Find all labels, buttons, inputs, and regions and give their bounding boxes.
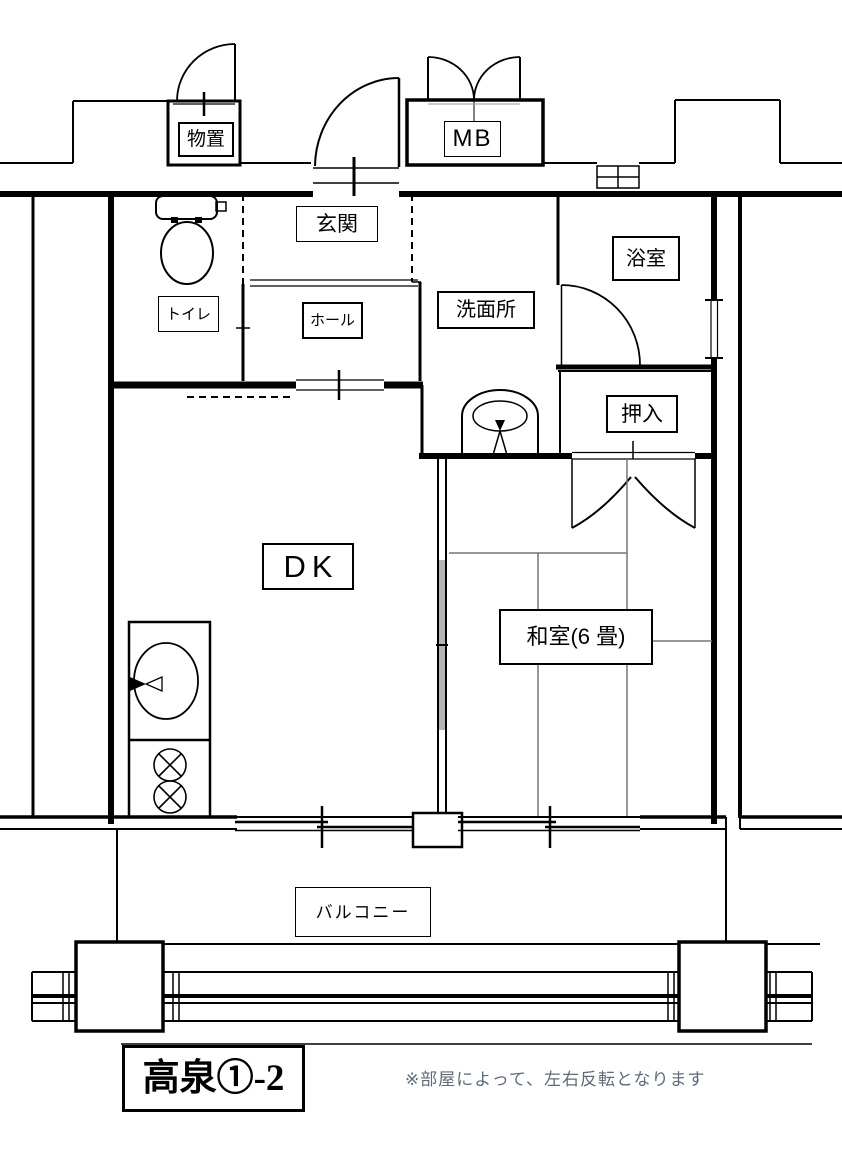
door-swing-arc xyxy=(474,57,520,100)
plan-title: 高泉①-2 xyxy=(122,1045,305,1112)
door-swing-arc xyxy=(177,44,235,101)
door-swing-arc xyxy=(428,57,474,100)
door-swing-arc xyxy=(572,477,631,528)
floor-plan-drawing xyxy=(0,0,842,1175)
dk-jroom-partition xyxy=(436,456,448,824)
plan-note: ※部屋によって、左右反転となります xyxy=(405,1071,706,1088)
railing xyxy=(32,942,812,1044)
kitchen-sink-icon xyxy=(134,643,198,719)
door-swing-arc xyxy=(562,285,641,365)
door-swing-arc xyxy=(635,477,695,528)
washing-machine-icon xyxy=(462,390,538,457)
floor-plan: 物置 MB 玄関 ホール トイレ 浴室 洗面所 押入 DK 和室(6 畳) バル… xyxy=(0,0,842,1175)
room-label-hall: ホール xyxy=(302,302,363,339)
interior-walls xyxy=(108,194,717,824)
bathroom-window xyxy=(705,300,723,358)
room-label-balcony: バルコニー xyxy=(295,887,431,937)
room-label-bathroom: 浴室 xyxy=(612,236,680,281)
railing-pillar-right xyxy=(679,942,766,1031)
door-swing-arc xyxy=(315,78,399,166)
entrance-door xyxy=(313,78,399,196)
stove-burners-icon xyxy=(154,749,186,813)
railing-pillar-left xyxy=(76,942,163,1031)
sliding-window-dk xyxy=(235,806,415,848)
room-label-washroom: 洗面所 xyxy=(437,291,535,329)
vent-grille xyxy=(597,166,639,188)
room-label-closet: 押入 xyxy=(606,395,678,433)
room-label-entrance: 玄関 xyxy=(296,206,378,242)
sliding-window-jroom xyxy=(458,806,640,848)
room-label-dining-kitchen: DK xyxy=(262,543,354,590)
kitchen-counter xyxy=(129,622,210,817)
window-post xyxy=(413,813,462,847)
room-label-meter-box: MB xyxy=(444,121,501,157)
room-label-storage: 物置 xyxy=(178,122,234,157)
corridor-walls xyxy=(0,100,842,194)
room-label-toilet: トイレ xyxy=(158,296,219,332)
room-label-japanese-room: 和室(6 畳) xyxy=(499,609,653,665)
closet-double-doors xyxy=(572,459,695,528)
toilet-icon xyxy=(156,196,226,284)
faucet-icon xyxy=(130,677,146,691)
